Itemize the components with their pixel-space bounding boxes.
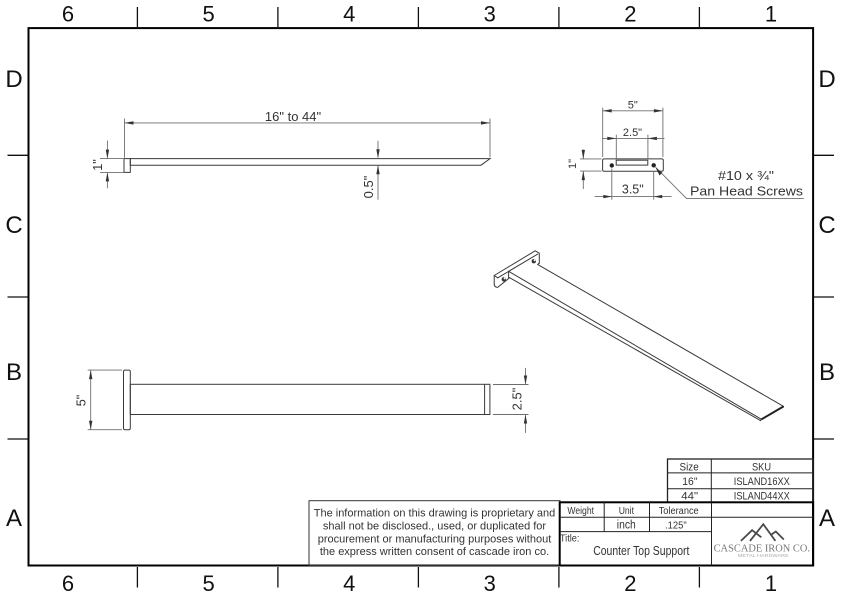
svg-text:B: B: [6, 359, 22, 386]
svg-text:5": 5": [628, 99, 638, 111]
svg-text:6: 6: [62, 571, 74, 595]
svg-text:the express written consent of: the express written consent of cascade i…: [320, 546, 549, 558]
svg-text:0.5": 0.5": [361, 175, 376, 198]
svg-text:6: 6: [62, 2, 74, 27]
svg-text:4: 4: [343, 571, 355, 595]
svg-text:Weight: Weight: [567, 506, 594, 517]
svg-text:B: B: [819, 359, 835, 386]
svg-text:D: D: [818, 66, 835, 93]
svg-text:#10 x ¾": #10 x ¾": [718, 168, 774, 183]
svg-text:The information on this drawin: The information on this drawing is propr…: [314, 508, 556, 520]
svg-text:C: C: [818, 212, 835, 239]
svg-text:shall not be disclosed., used,: shall not be disclosed., used, or duplic…: [323, 520, 547, 532]
svg-text:inch: inch: [617, 520, 636, 532]
svg-text:2.5": 2.5": [510, 387, 525, 410]
svg-text:2: 2: [624, 2, 636, 27]
svg-text:ISLAND44XX: ISLAND44XX: [734, 490, 791, 502]
svg-text:A: A: [819, 505, 835, 532]
svg-text:16": 16": [682, 476, 697, 488]
svg-text:A: A: [6, 505, 22, 532]
svg-text:Title:: Title:: [560, 534, 580, 545]
svg-text:Tolerance: Tolerance: [659, 506, 699, 517]
svg-text:4: 4: [343, 2, 355, 27]
svg-text:1: 1: [765, 571, 777, 595]
svg-text:3.5": 3.5": [622, 183, 644, 197]
svg-text:Unit: Unit: [619, 506, 634, 517]
svg-text:1": 1": [567, 159, 579, 169]
svg-text:3: 3: [484, 2, 496, 27]
svg-text:5: 5: [202, 2, 214, 27]
svg-text:Counter Top Support: Counter Top Support: [593, 544, 690, 558]
svg-text:44": 44": [681, 490, 698, 502]
svg-text:16" to 44": 16" to 44": [265, 109, 322, 124]
svg-text:3: 3: [484, 571, 496, 595]
svg-text:Size: Size: [680, 462, 699, 474]
svg-text:C: C: [5, 212, 22, 239]
svg-text:1: 1: [765, 2, 777, 27]
svg-text:.125": .125": [665, 520, 687, 531]
svg-text:SKU: SKU: [752, 462, 771, 474]
svg-text:5: 5: [202, 571, 214, 595]
svg-text:METAL HARDWARE: METAL HARDWARE: [738, 553, 789, 558]
svg-text:procurement or manufacturing p: procurement or manufacturing purposes wi…: [318, 534, 552, 546]
svg-text:2.5": 2.5": [623, 127, 642, 139]
svg-text:1": 1": [90, 159, 105, 171]
svg-text:D: D: [5, 66, 22, 93]
svg-text:Pan Head Screws: Pan Head Screws: [690, 184, 804, 199]
svg-text:ISLAND16XX: ISLAND16XX: [734, 476, 791, 488]
svg-text:5": 5": [74, 394, 89, 406]
svg-text:2: 2: [624, 571, 636, 595]
